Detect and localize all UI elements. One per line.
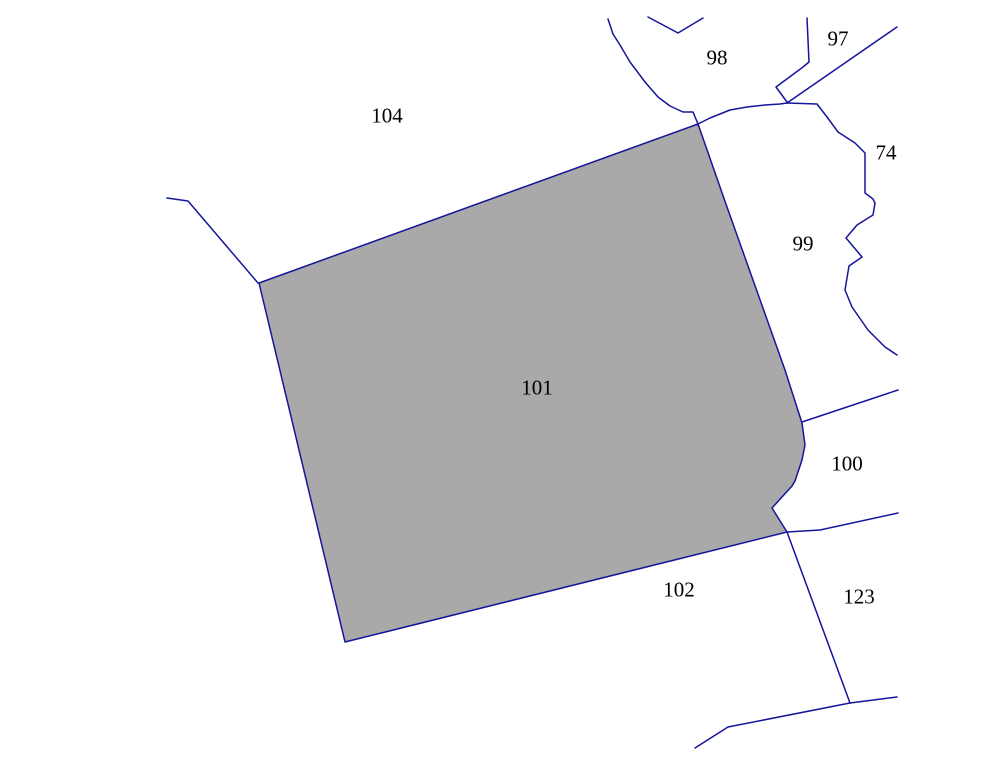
boundary-west-fragment: [167, 198, 258, 283]
parcel-label-123: 123: [843, 584, 875, 608]
boundary-99-100: [802, 390, 898, 422]
parcel-label-99: 99: [793, 231, 814, 255]
boundary-100-123: [787, 513, 898, 532]
parcel-map-viewport: 10498977499101100102123: [0, 0, 1006, 776]
boundary-97-west: [776, 18, 809, 102]
parcel-label-97: 97: [828, 26, 849, 50]
parcel-label-100: 100: [831, 451, 863, 475]
boundary-123-west: [787, 532, 850, 703]
parcel-label-74: 74: [876, 140, 898, 164]
boundary-south: [695, 697, 897, 748]
parcel-label-104: 104: [371, 103, 403, 127]
parcel-label-102: 102: [663, 577, 695, 601]
parcel-label-101: 101: [521, 375, 553, 399]
parcel-map: 10498977499101100102123: [0, 0, 1006, 776]
boundary-98-north-notch: [648, 17, 703, 33]
parcel-label-98: 98: [707, 45, 728, 69]
boundary-98-west: [608, 19, 698, 124]
boundary-98-south: [698, 103, 787, 124]
